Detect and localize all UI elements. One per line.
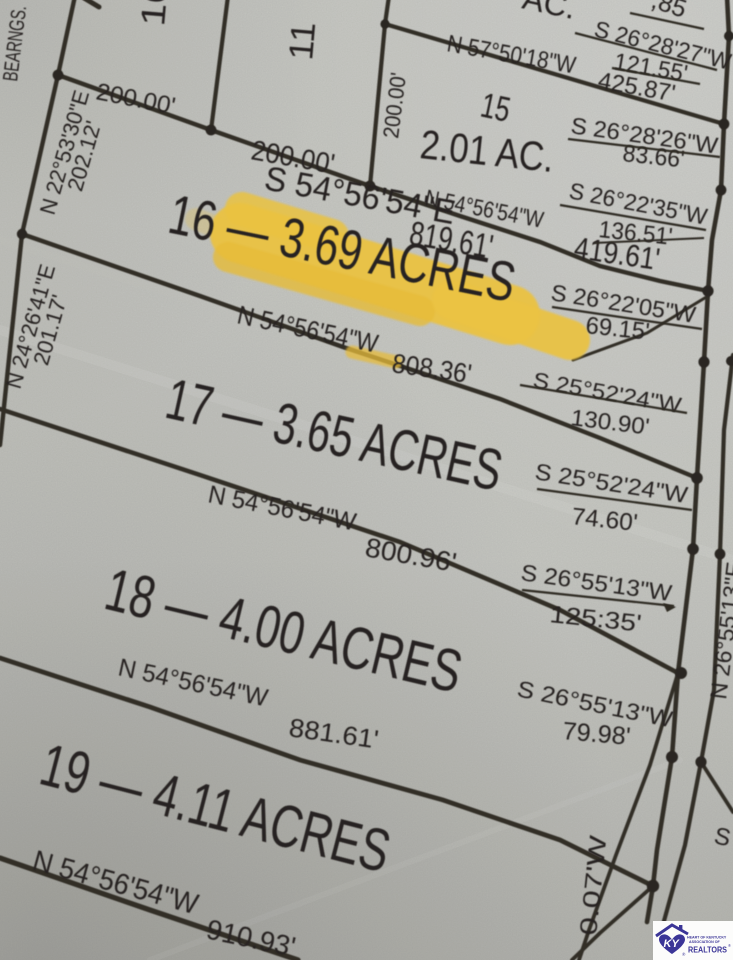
svg-text:11: 11 (282, 21, 323, 62)
svg-text:®: ® (728, 943, 731, 948)
svg-text:10: 10 (134, 0, 176, 28)
svg-text:HEART OF KENTUCKY: HEART OF KENTUCKY (687, 936, 727, 940)
svg-text:79.98': 79.98' (561, 717, 631, 751)
svg-text:KY: KY (664, 938, 681, 950)
svg-text:REALTORS: REALTORS (688, 945, 727, 955)
